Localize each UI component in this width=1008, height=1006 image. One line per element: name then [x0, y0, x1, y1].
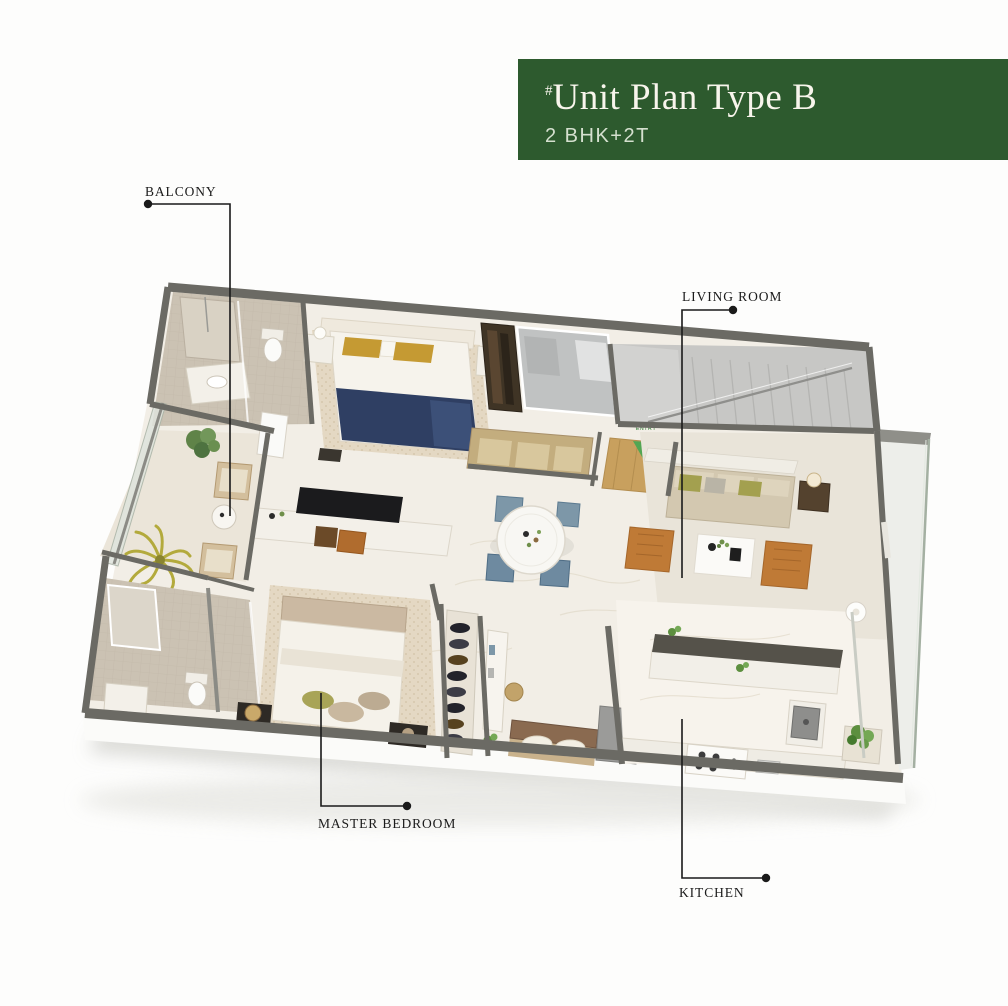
- staircase: [610, 344, 874, 430]
- kitchen-label: KITCHEN: [679, 885, 745, 900]
- shower-tray: [180, 297, 240, 362]
- bath1-basin: [207, 376, 227, 388]
- dining-table: [497, 506, 565, 574]
- leader-dot: [403, 802, 411, 810]
- coffee-table: [694, 534, 755, 578]
- basket: [505, 683, 523, 701]
- bed2-pillow-gold-1: [342, 337, 382, 358]
- sofa-pillow-gray: [704, 477, 726, 494]
- leader-dot: [144, 200, 152, 208]
- accent-chair-2: [761, 541, 812, 589]
- oven-cabinet: [786, 700, 826, 748]
- living-room-label: LIVING ROOM: [682, 289, 782, 304]
- balcony-chair-2: [199, 543, 237, 579]
- leader-dot: [729, 306, 737, 314]
- kitchen: [616, 600, 882, 779]
- glass-highlight: [575, 340, 611, 382]
- balcony-table: [212, 505, 236, 529]
- balcony-door-gap: [884, 522, 888, 558]
- bathroom-top-left: [152, 292, 312, 426]
- cup: [220, 513, 224, 517]
- unit-plan-page: #Unit Plan Type B 2 BHK+2T: [0, 0, 1008, 1006]
- master-bedroom-label: MASTER BEDROOM: [318, 816, 456, 831]
- sofa: [666, 466, 795, 528]
- glass-shade: [524, 336, 560, 376]
- stair-landing: [610, 344, 684, 426]
- ottoman-1: [337, 530, 366, 554]
- sofa-pillow-olive-2: [738, 480, 762, 497]
- floor-plan-canvas: ENTRY: [0, 0, 1008, 1006]
- dressing-room: [517, 327, 616, 416]
- blanket-fold: [430, 400, 474, 450]
- accent-chair-1: [625, 527, 674, 572]
- bed2-pillow-gold-2: [393, 342, 434, 363]
- bed2-bench: [318, 448, 342, 462]
- ottoman-2: [314, 526, 338, 548]
- leader-dot: [762, 874, 770, 882]
- bathroom-bottom-left: [88, 578, 262, 714]
- dining-area: [486, 496, 580, 587]
- balcony-label: BALCONY: [145, 184, 217, 199]
- open-door-leaf: [257, 412, 288, 458]
- lamp-left: [314, 327, 326, 339]
- bath2-vanity: [104, 683, 148, 714]
- bath2-shower: [108, 585, 160, 650]
- bed2-pillow-white: [380, 341, 396, 357]
- balcony-chair-1: [214, 462, 252, 500]
